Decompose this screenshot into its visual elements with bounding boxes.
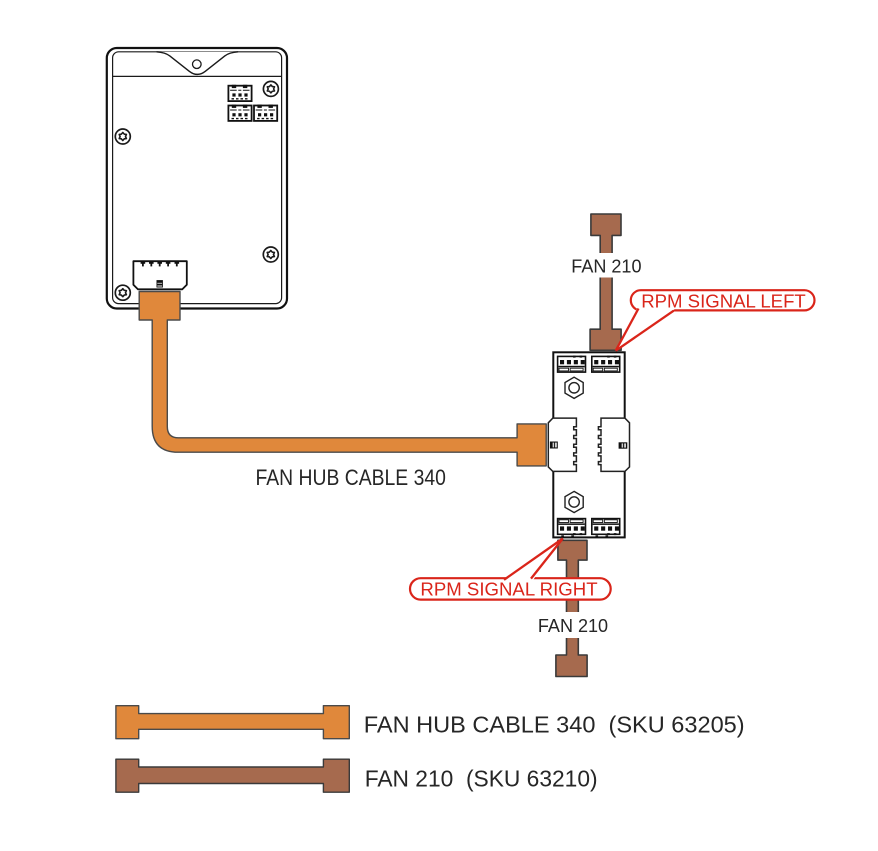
svg-text:FAN 210: FAN 210 (538, 615, 608, 636)
svg-text:RPM SIGNAL LEFT: RPM SIGNAL LEFT (641, 290, 806, 311)
svg-text:FAN 210 (SKU 63210): FAN 210 (SKU 63210) (365, 765, 598, 791)
svg-text:FAN HUB CABLE 340 (SKU 63205): FAN HUB CABLE 340 (SKU 63205) (364, 711, 745, 737)
svg-text:FAN HUB CABLE 340: FAN HUB CABLE 340 (256, 465, 446, 490)
svg-text:FAN 210: FAN 210 (571, 256, 641, 277)
svg-text:RPM SIGNAL RIGHT: RPM SIGNAL RIGHT (420, 579, 597, 600)
